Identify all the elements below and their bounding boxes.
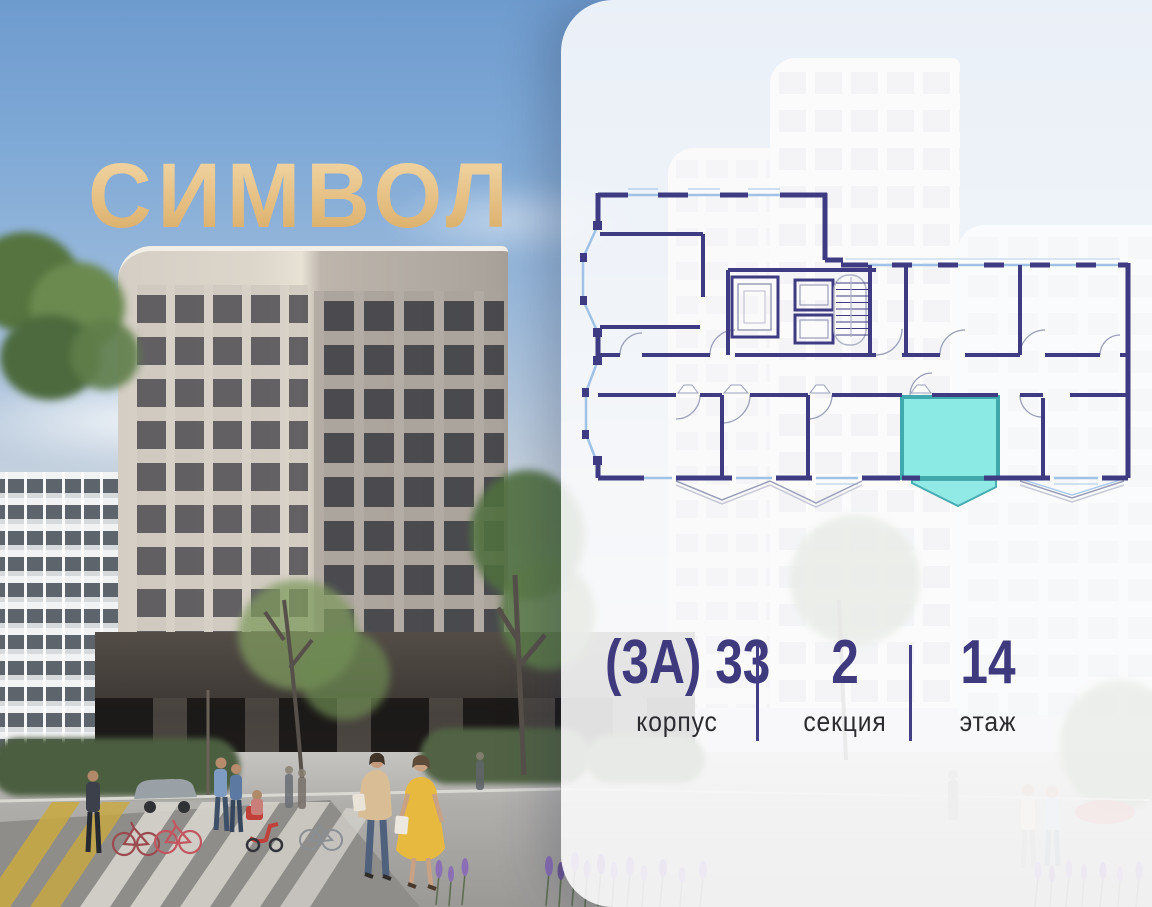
section-value: 2: [789, 632, 901, 694]
curb: [0, 789, 560, 801]
stat-corpus[interactable]: (3А) 33 корпус: [587, 632, 767, 738]
elevator-core: [732, 277, 833, 343]
plan-interior-walls: [598, 234, 1128, 478]
section-label: секция: [783, 706, 906, 738]
stairwell: [834, 275, 868, 345]
apartment-card: СИМВОЛ: [0, 0, 1152, 907]
plan-thresholds: [678, 385, 931, 393]
stat-floor[interactable]: 14 этаж: [918, 632, 1058, 738]
floor-plan: [580, 185, 1136, 510]
unit-highlight[interactable]: [902, 397, 998, 506]
floor-value: 14: [932, 632, 1044, 694]
stat-section[interactable]: 2 секция: [775, 632, 915, 738]
project-logo: СИМВОЛ: [88, 150, 513, 242]
corpus-value: (3А) 33: [605, 632, 749, 694]
plan-balconies: [676, 481, 1124, 507]
floor-label: этаж: [926, 706, 1049, 738]
corpus-label: корпус: [598, 706, 756, 738]
